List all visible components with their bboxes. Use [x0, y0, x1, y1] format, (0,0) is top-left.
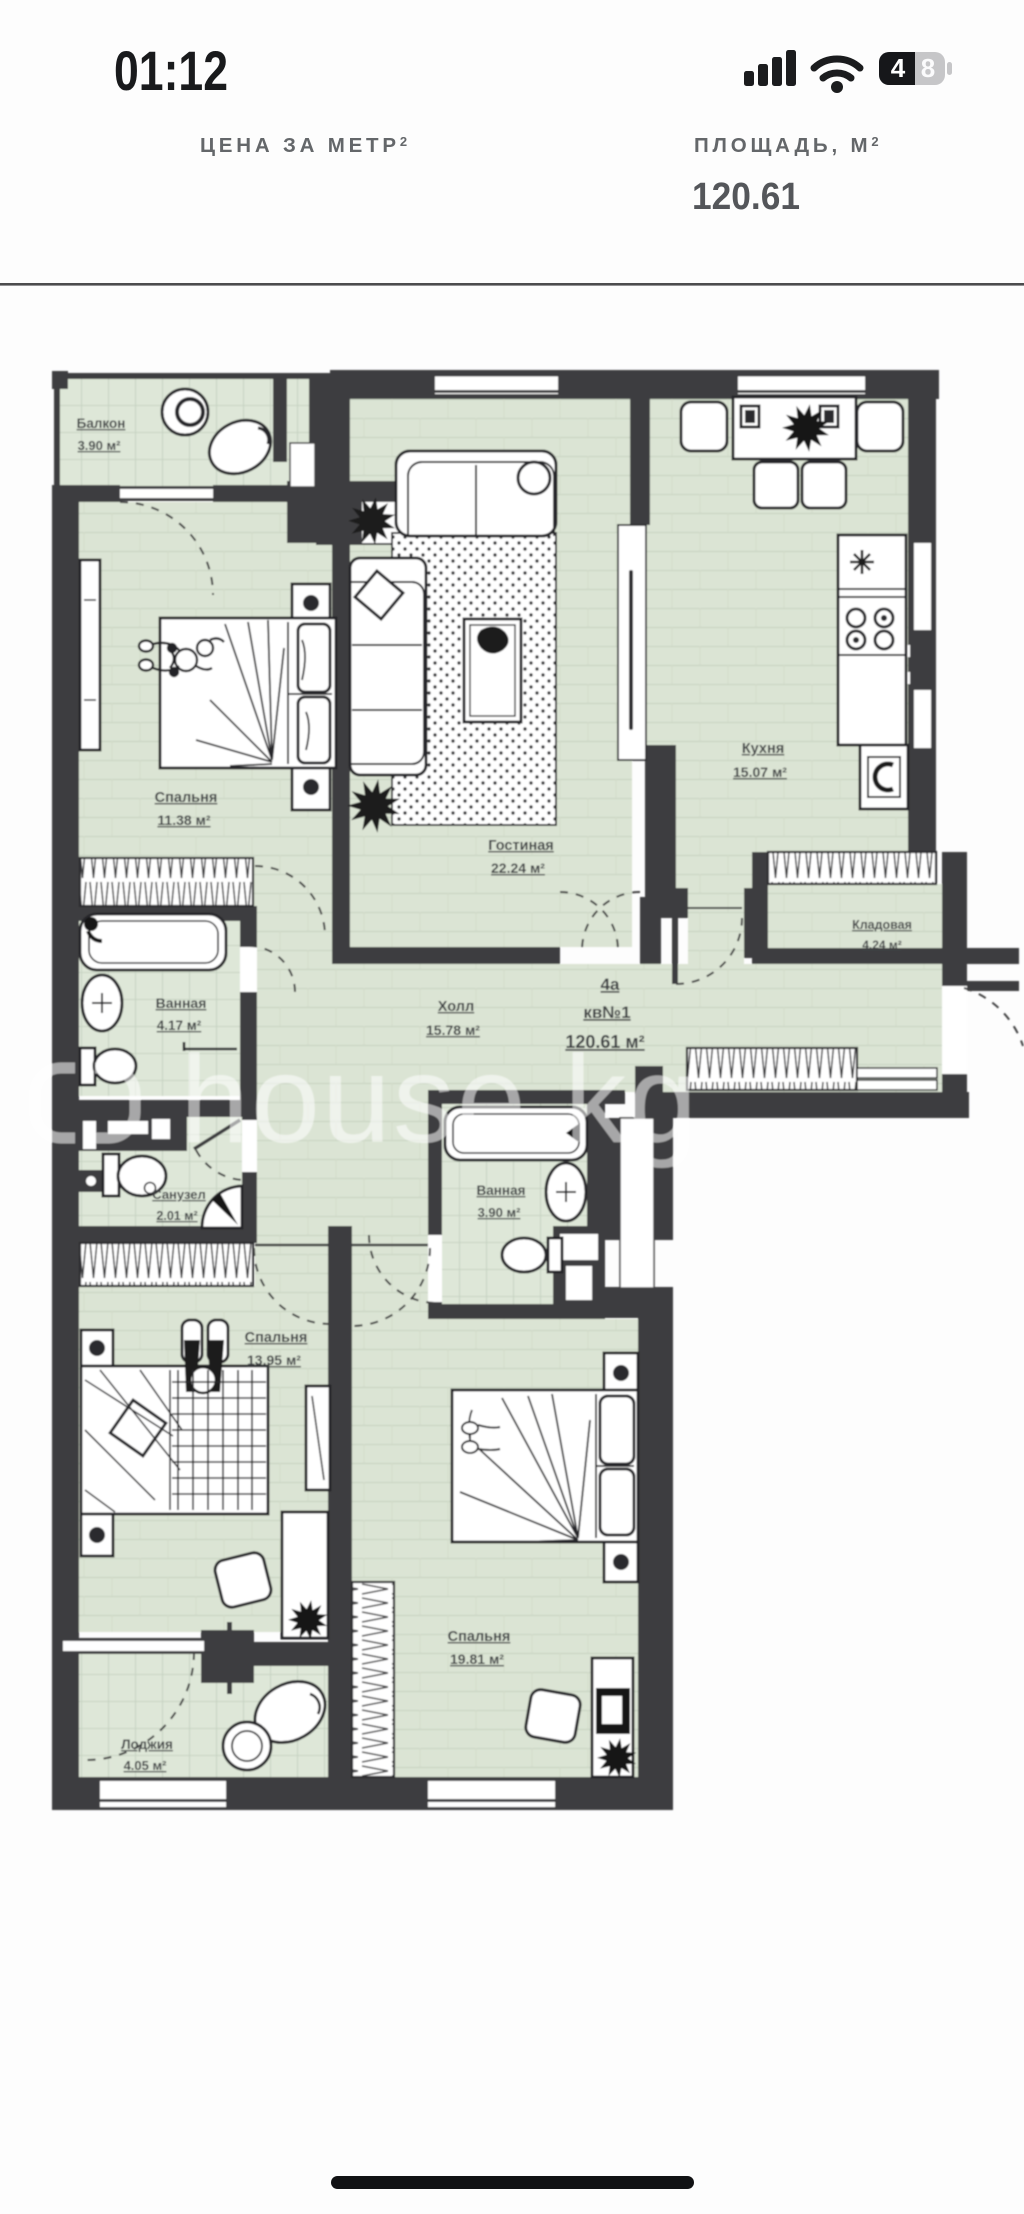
- svg-text:Санузел: Санузел: [152, 1187, 205, 1202]
- svg-text:Холл: Холл: [438, 999, 474, 1015]
- svg-text:Ванная: Ванная: [477, 1183, 526, 1198]
- svg-text:Кладовая: Кладовая: [852, 918, 912, 932]
- svg-text:01:12: 01:12: [114, 39, 228, 102]
- svg-text:8: 8: [921, 53, 935, 83]
- svg-text:ЦЕНА ЗА МЕТР2: ЦЕНА ЗА МЕТР2: [200, 134, 411, 157]
- svg-text:Гостиная: Гостиная: [488, 838, 554, 854]
- svg-text:120.61: 120.61: [692, 176, 800, 218]
- svg-text:Ванная: Ванная: [156, 995, 207, 1011]
- svg-text:4.24 м²: 4.24 м²: [862, 938, 902, 952]
- svg-text:4: 4: [891, 53, 906, 83]
- svg-text:22.24 м²: 22.24 м²: [491, 860, 545, 876]
- svg-text:120.61 м²: 120.61 м²: [565, 1032, 644, 1052]
- svg-text:Спальня: Спальня: [155, 790, 218, 806]
- svg-text:19.81 м²: 19.81 м²: [450, 1651, 504, 1667]
- svg-text:11.38 м²: 11.38 м²: [157, 812, 211, 828]
- svg-text:13.95 м²: 13.95 м²: [247, 1352, 301, 1368]
- svg-text:Лоджия: Лоджия: [121, 1737, 173, 1752]
- svg-text:15.78 м²: 15.78 м²: [426, 1022, 480, 1038]
- svg-text:15.07 м²: 15.07 м²: [733, 764, 787, 780]
- svg-text:Кухня: Кухня: [742, 741, 784, 757]
- svg-text:кв№1: кв№1: [583, 1003, 630, 1022]
- svg-text:Балкон: Балкон: [77, 416, 126, 431]
- svg-text:4а: 4а: [601, 975, 620, 994]
- svg-text:3.90 м²: 3.90 м²: [478, 1205, 522, 1220]
- svg-text:3.90 м²: 3.90 м²: [78, 438, 122, 453]
- svg-text:4.05 м²: 4.05 м²: [124, 1758, 168, 1773]
- svg-text:4.17 м²: 4.17 м²: [157, 1018, 202, 1033]
- svg-text:ПЛОЩАДЬ, М2: ПЛОЩАДЬ, М2: [694, 134, 882, 157]
- svg-text:2.01 м²: 2.01 м²: [156, 1209, 197, 1223]
- svg-text:Спальня: Спальня: [448, 1629, 511, 1645]
- svg-text:Спальня: Спальня: [245, 1330, 308, 1346]
